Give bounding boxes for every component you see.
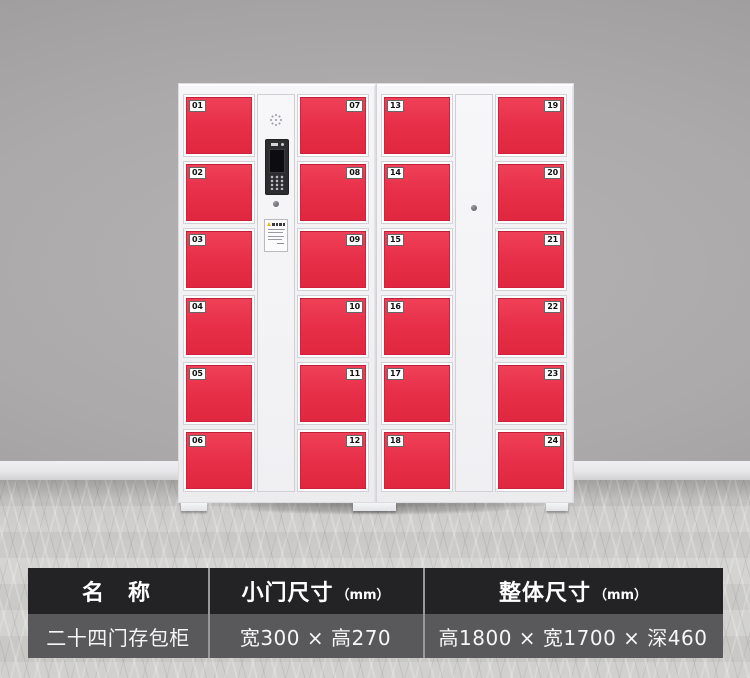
door-number-badge: 08 <box>346 167 363 179</box>
door-number-badge: 22 <box>544 301 561 313</box>
locker-door-panel: 14 <box>384 164 450 221</box>
locker-door: 23 <box>495 362 567 425</box>
keyhole-icon <box>471 205 477 211</box>
cabinet-right: 13 14 15 <box>376 83 574 503</box>
spec-table-row: 二十四门存包柜 宽300 × 高270 高1800 × 宽1700 × 深460 <box>28 614 723 658</box>
header-overall-size: 整体尺寸（mm） <box>423 568 723 614</box>
locker-door: 19 <box>495 94 567 157</box>
locker-door-panel: 01 <box>186 97 252 154</box>
locker-door: 02 <box>183 161 255 224</box>
speaker-icon <box>275 119 277 121</box>
locker-cabinets: 01 02 03 <box>178 83 574 511</box>
door-column-2: 07 08 09 <box>297 94 369 492</box>
locker-door: 03 <box>183 228 255 291</box>
locker-door: 11 <box>297 362 369 425</box>
locker-door: 17 <box>381 362 453 425</box>
status-light <box>271 143 278 146</box>
door-number-badge: 15 <box>387 234 404 246</box>
locker-door-panel: 10 <box>300 298 366 355</box>
door-number-badge: 23 <box>544 368 561 380</box>
locker-door-panel: 02 <box>186 164 252 221</box>
header-name: 名 称 <box>28 568 208 614</box>
locker-door: 14 <box>381 161 453 224</box>
locker-door-panel: 22 <box>498 298 564 355</box>
locker-door-panel: 16 <box>384 298 450 355</box>
value-name: 二十四门存包柜 <box>28 614 208 658</box>
door-number-badge: 04 <box>189 301 206 313</box>
door-number-badge: 06 <box>189 435 206 447</box>
table-divider <box>423 568 425 658</box>
locker-door-panel: 18 <box>384 432 450 489</box>
value-overall-size: 高1800 × 宽1700 × 深460 <box>423 614 723 658</box>
notice-sticker <box>264 219 288 252</box>
keyhole-icon <box>273 201 279 207</box>
door-column-4: 19 20 21 <box>495 94 567 492</box>
locker-door-panel: 15 <box>384 231 450 288</box>
locker-door-panel: 11 <box>300 365 366 422</box>
locker-door: 21 <box>495 228 567 291</box>
door-number-badge: 02 <box>189 167 206 179</box>
locker-door-panel: 23 <box>498 365 564 422</box>
control-terminal <box>265 139 289 195</box>
locker-door-panel: 24 <box>498 432 564 489</box>
door-number-badge: 10 <box>346 301 363 313</box>
locker-door-panel: 05 <box>186 365 252 422</box>
locker-door-panel: 03 <box>186 231 252 288</box>
camera-icon <box>281 143 284 146</box>
sticker-text-line <box>268 236 284 237</box>
locker-door: 22 <box>495 295 567 358</box>
locker-door: 16 <box>381 295 453 358</box>
locker-door: 06 <box>183 429 255 492</box>
locker-door-panel: 12 <box>300 432 366 489</box>
locker-door: 18 <box>381 429 453 492</box>
keypad <box>270 175 285 190</box>
locker-door-panel: 08 <box>300 164 366 221</box>
door-number-badge: 14 <box>387 167 404 179</box>
product-detail-image: 01 02 03 <box>0 0 750 678</box>
cabinet-foot <box>546 503 568 511</box>
door-number-badge: 09 <box>346 234 363 246</box>
master-door-column <box>455 94 493 492</box>
door-number-badge: 07 <box>346 100 363 112</box>
locker-door: 01 <box>183 94 255 157</box>
door-number-badge: 11 <box>346 368 363 380</box>
door-number-badge: 18 <box>387 435 404 447</box>
locker-door: 12 <box>297 429 369 492</box>
door-number-badge: 03 <box>189 234 206 246</box>
terminal-screen <box>269 149 285 173</box>
locker-door: 13 <box>381 94 453 157</box>
locker-door-panel: 21 <box>498 231 564 288</box>
door-column-1: 01 02 03 <box>183 94 255 492</box>
sticker-text-line <box>268 232 283 233</box>
spec-table: 名 称 小门尺寸（mm） 整体尺寸（mm） 二十四门存包柜 宽300 × 高27… <box>28 568 723 658</box>
cabinet-foot <box>353 503 396 511</box>
locker-door-panel: 07 <box>300 97 366 154</box>
locker-door-panel: 06 <box>186 432 252 489</box>
locker-door: 04 <box>183 295 255 358</box>
locker-door: 10 <box>297 295 369 358</box>
spec-table-header: 名 称 小门尺寸（mm） 整体尺寸（mm） <box>28 568 723 614</box>
door-number-badge: 12 <box>346 435 363 447</box>
door-number-badge: 16 <box>387 301 404 313</box>
locker-door-panel: 17 <box>384 365 450 422</box>
locker-door: 20 <box>495 161 567 224</box>
door-number-badge: 19 <box>544 100 561 112</box>
warning-icon <box>267 222 271 226</box>
locker-door-panel: 20 <box>498 164 564 221</box>
locker-door: 07 <box>297 94 369 157</box>
locker-door: 09 <box>297 228 369 291</box>
door-number-badge: 05 <box>189 368 206 380</box>
door-number-badge: 24 <box>544 435 561 447</box>
cabinet-left: 01 02 03 <box>178 83 376 503</box>
door-number-badge: 01 <box>189 100 206 112</box>
cabinet-foot <box>181 503 207 511</box>
door-number-badge: 20 <box>544 167 561 179</box>
locker-door-panel: 09 <box>300 231 366 288</box>
locker-door: 08 <box>297 161 369 224</box>
locker-door-panel: 13 <box>384 97 450 154</box>
door-number-badge: 13 <box>387 100 404 112</box>
locker-door-panel: 04 <box>186 298 252 355</box>
locker-door-panel: 19 <box>498 97 564 154</box>
sticker-header <box>267 222 285 226</box>
locker-door: 05 <box>183 362 255 425</box>
door-column-3: 13 14 15 <box>381 94 453 492</box>
sticker-text-line <box>268 239 282 240</box>
locker-door: 24 <box>495 429 567 492</box>
table-divider <box>208 568 210 658</box>
value-door-size: 宽300 × 高270 <box>208 614 423 658</box>
sticker-text-line <box>268 229 285 230</box>
door-number-badge: 17 <box>387 368 404 380</box>
header-door-size: 小门尺寸（mm） <box>208 568 423 614</box>
door-number-badge: 21 <box>544 234 561 246</box>
control-panel-column <box>257 94 295 492</box>
locker-door: 15 <box>381 228 453 291</box>
sticker-text-line <box>277 243 284 244</box>
